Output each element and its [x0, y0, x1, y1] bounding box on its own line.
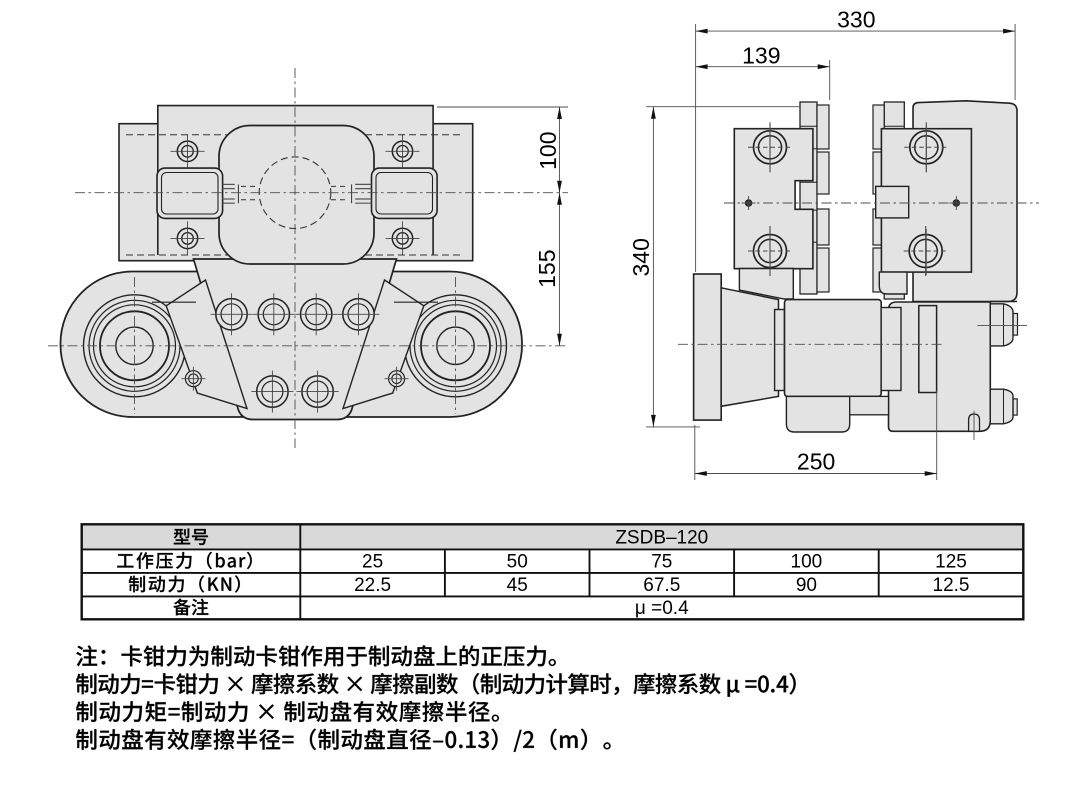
svg-text:67.5: 67.5 [643, 575, 680, 596]
svg-text:μ =0.4: μ =0.4 [635, 598, 689, 619]
svg-text:250: 250 [797, 449, 835, 475]
svg-text:25: 25 [362, 552, 383, 573]
svg-text:100: 100 [791, 552, 823, 573]
svg-text:50: 50 [507, 552, 528, 573]
svg-text:22.5: 22.5 [354, 575, 391, 596]
svg-text:100: 100 [535, 132, 561, 170]
svg-text:45: 45 [507, 575, 528, 596]
svg-text:330: 330 [837, 7, 875, 33]
svg-text:12.5: 12.5 [933, 575, 970, 596]
svg-text:ZSDB–120: ZSDB–120 [615, 528, 708, 549]
svg-text:340: 340 [628, 238, 654, 276]
svg-text:90: 90 [796, 575, 817, 596]
svg-text:75: 75 [651, 552, 672, 573]
svg-text:155: 155 [534, 250, 560, 288]
svg-text:139: 139 [742, 42, 780, 68]
svg-text:125: 125 [935, 552, 967, 573]
